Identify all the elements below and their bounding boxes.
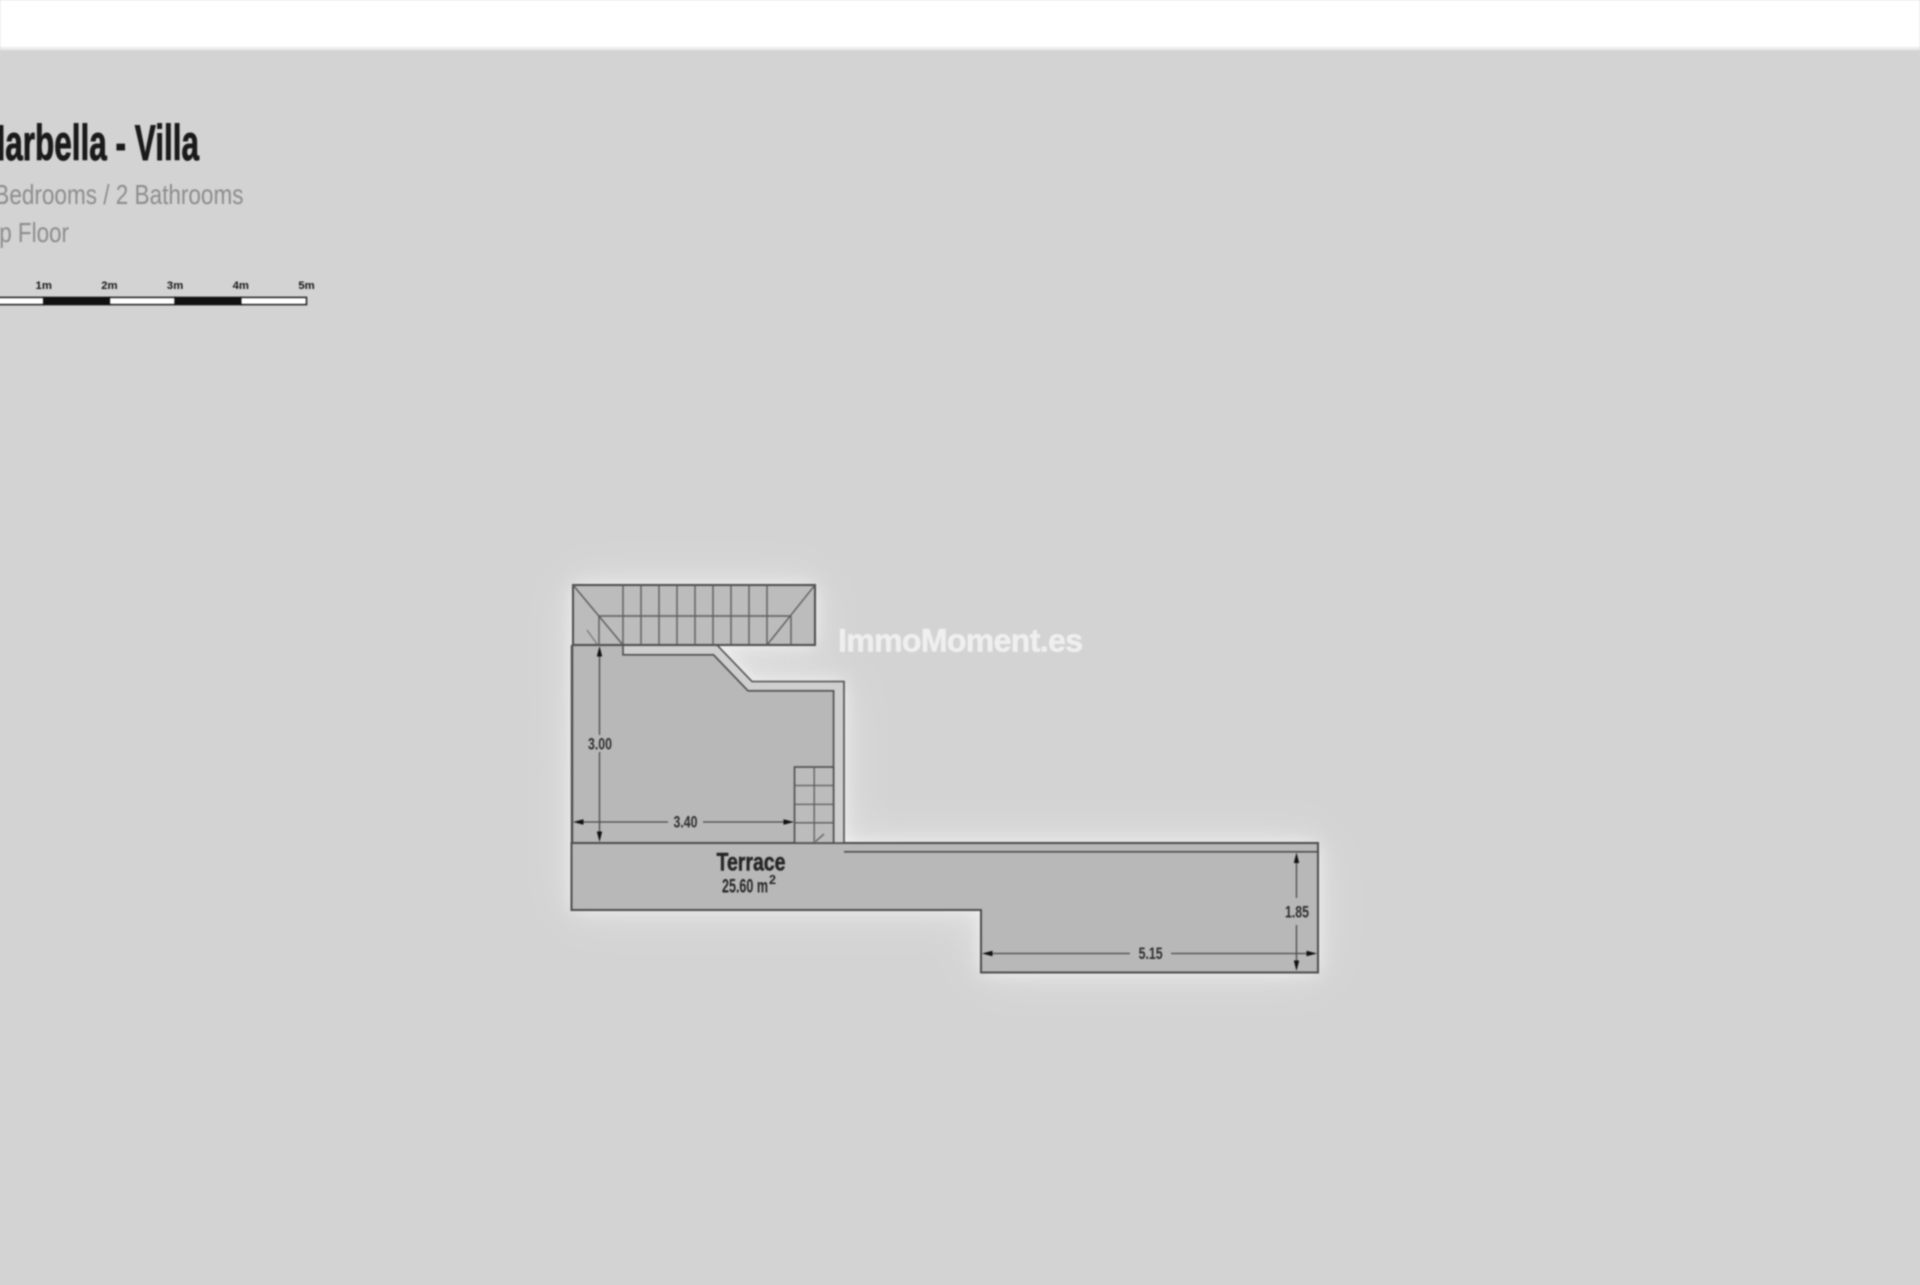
svg-text:3 Bedrooms / 2 Bathrooms: 3 Bedrooms / 2 Bathrooms [0,179,244,210]
svg-text:2: 2 [769,873,776,887]
svg-text:3m: 3m [167,280,183,292]
svg-text:25.60 m: 25.60 m [722,876,768,897]
svg-text:2m: 2m [101,280,117,292]
svg-text:4m: 4m [233,280,249,292]
svg-text:1m: 1m [36,280,52,292]
svg-text:3.00: 3.00 [588,736,612,754]
svg-text:5.15: 5.15 [1139,945,1163,963]
svg-text:Marbella - Villa: Marbella - Villa [0,115,200,171]
svg-text:Top Floor: Top Floor [0,217,69,248]
svg-text:5m: 5m [298,280,314,292]
svg-text:3.40: 3.40 [674,814,698,832]
svg-text:1.85: 1.85 [1285,904,1309,922]
svg-text:ImmoMoment.es: ImmoMoment.es [838,623,1083,659]
